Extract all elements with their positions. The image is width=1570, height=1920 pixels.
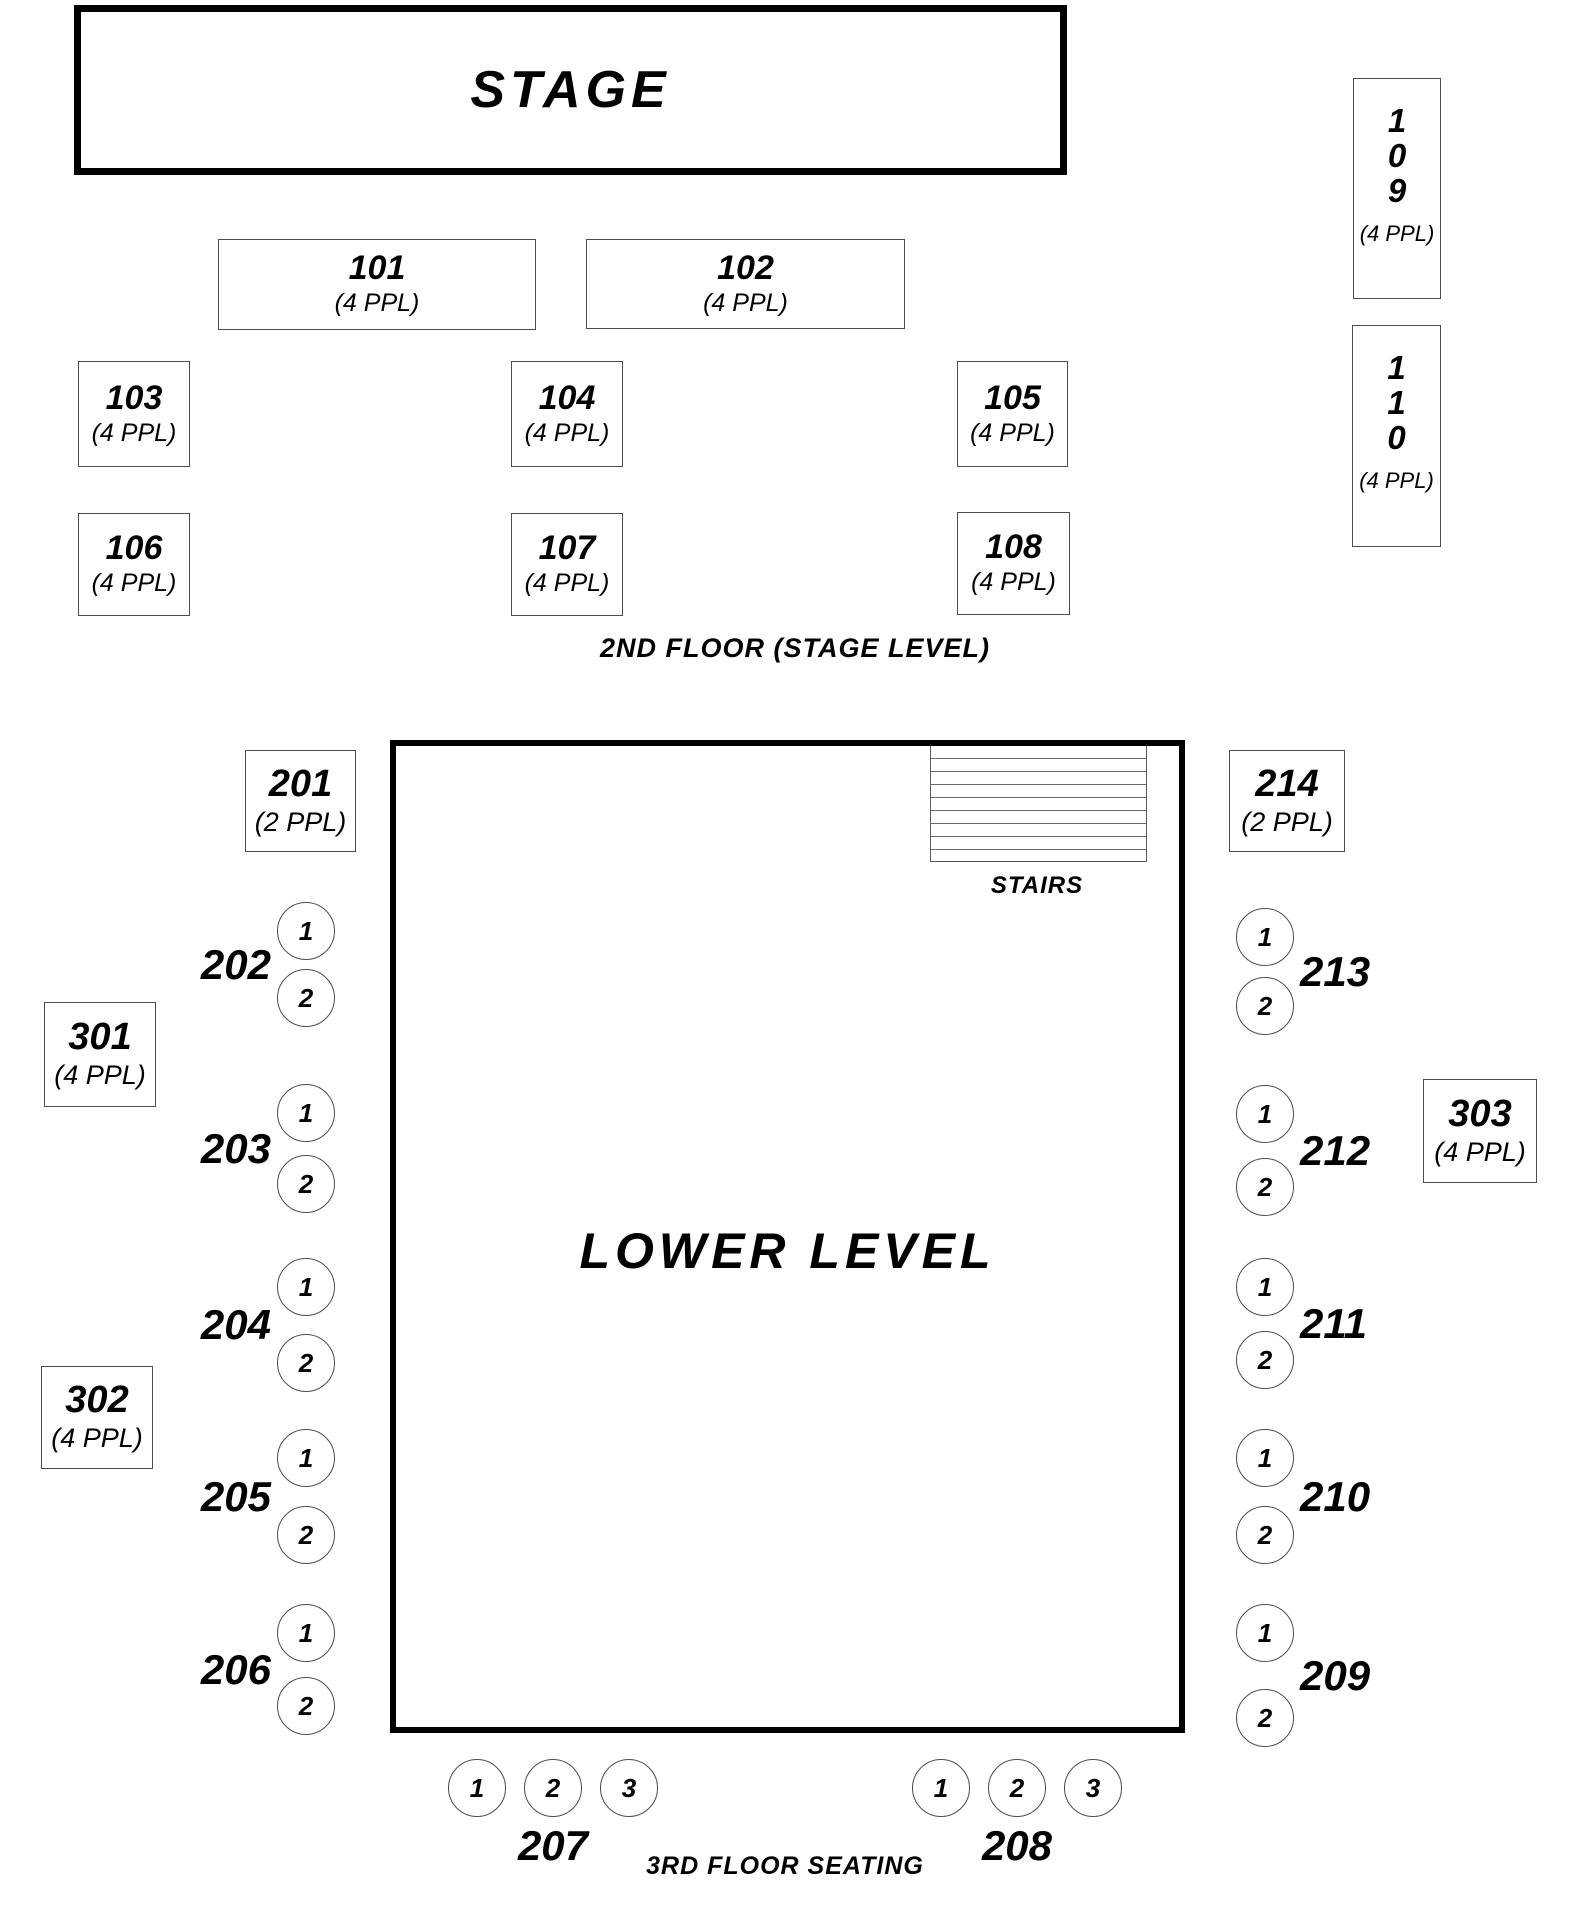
table-label: 211 (1300, 1300, 1388, 1348)
table-205-group: 205 1 2 (183, 1429, 335, 1564)
table-number: 214 (1255, 765, 1318, 805)
table-label: 213 (1300, 948, 1388, 996)
table-301[interactable]: 301 (4 PPL) (44, 1002, 156, 1107)
floor2-caption: 2ND FLOOR (STAGE LEVEL) (395, 633, 1195, 664)
table-210-group: 1 2 210 (1236, 1429, 1388, 1564)
table-label: 206 (183, 1646, 271, 1694)
table-number: 302 (65, 1381, 128, 1421)
seat-circle[interactable]: 1 (1236, 1604, 1294, 1662)
stairs (930, 746, 1147, 862)
table-capacity: (4 PPL) (51, 1424, 143, 1454)
table-105[interactable]: 105 (4 PPL) (957, 361, 1068, 467)
table-capacity: (4 PPL) (335, 290, 420, 318)
table-label: 204 (183, 1301, 271, 1349)
seat-circle[interactable]: 1 (277, 902, 335, 960)
table-number: 301 (68, 1018, 131, 1058)
table-214[interactable]: 214 (2 PPL) (1229, 750, 1345, 852)
seat-circle[interactable]: 1 (448, 1759, 506, 1817)
table-213-group: 1 2 213 (1236, 908, 1388, 1035)
seat-circle[interactable]: 1 (1236, 1429, 1294, 1487)
table-number: 108 (985, 530, 1042, 566)
table-206-group: 206 1 2 (183, 1604, 335, 1735)
table-number-digit: 1 (1388, 105, 1406, 137)
table-capacity: (4 PPL) (92, 570, 177, 598)
seat-circle[interactable]: 2 (988, 1759, 1046, 1817)
seat-circle[interactable]: 2 (277, 1155, 335, 1213)
seat-circle[interactable]: 1 (277, 1258, 335, 1316)
table-capacity: (4 PPL) (970, 420, 1055, 448)
table-103[interactable]: 103 (4 PPL) (78, 361, 190, 467)
seat-circle[interactable]: 2 (1236, 1158, 1294, 1216)
table-104[interactable]: 104 (4 PPL) (511, 361, 623, 467)
table-number-digit: 0 (1387, 422, 1405, 454)
table-capacity: (4 PPL) (92, 420, 177, 448)
table-capacity: (2 PPL) (255, 808, 347, 838)
seat-circle[interactable]: 2 (1236, 1689, 1294, 1747)
table-capacity: (4 PPL) (1359, 469, 1434, 493)
table-label: 210 (1300, 1473, 1388, 1521)
table-number: 201 (269, 765, 332, 805)
floor3-caption: 3RD FLOOR SEATING (385, 1852, 1185, 1881)
table-203-group: 203 1 2 (183, 1084, 335, 1213)
lower-level-label: LOWER LEVEL (390, 1222, 1185, 1280)
seating-chart: STAGE 101 (4 PPL) 102 (4 PPL) 103 (4 PPL… (0, 0, 1570, 1920)
stairs-label: STAIRS (937, 872, 1137, 900)
table-label: 203 (183, 1125, 271, 1173)
table-number: 106 (106, 531, 163, 567)
seat-circle[interactable]: 2 (1236, 1506, 1294, 1564)
table-303[interactable]: 303 (4 PPL) (1423, 1079, 1537, 1183)
seat-circle[interactable]: 2 (1236, 1331, 1294, 1389)
table-label: 212 (1300, 1127, 1388, 1175)
seat-circle[interactable]: 1 (1236, 1085, 1294, 1143)
seat-circle[interactable]: 1 (277, 1604, 335, 1662)
table-106[interactable]: 106 (4 PPL) (78, 513, 190, 616)
seat-circle[interactable]: 2 (277, 1506, 335, 1564)
table-label: 209 (1300, 1652, 1388, 1700)
seat-circle[interactable]: 1 (1236, 908, 1294, 966)
seat-circle[interactable]: 2 (277, 969, 335, 1027)
table-number-digit: 0 (1388, 140, 1406, 172)
table-capacity: (4 PPL) (1360, 222, 1435, 246)
stage-box: STAGE (74, 5, 1067, 175)
seat-circle[interactable]: 2 (1236, 977, 1294, 1035)
table-capacity: (2 PPL) (1241, 808, 1333, 838)
table-number: 103 (106, 381, 163, 417)
table-209-group: 1 2 209 (1236, 1604, 1388, 1747)
seat-circle[interactable]: 1 (277, 1429, 335, 1487)
table-211-group: 1 2 211 (1236, 1258, 1388, 1389)
table-107[interactable]: 107 (4 PPL) (511, 513, 623, 616)
table-number: 303 (1448, 1095, 1511, 1135)
table-capacity: (4 PPL) (1434, 1138, 1526, 1168)
table-number: 105 (984, 381, 1041, 417)
table-number-digit: 9 (1388, 175, 1406, 207)
table-102[interactable]: 102 (4 PPL) (586, 239, 905, 329)
table-number: 102 (717, 251, 774, 287)
table-202-group: 202 1 2 (183, 902, 335, 1027)
seat-circle[interactable]: 1 (912, 1759, 970, 1817)
table-110[interactable]: 1 1 0 (4 PPL) (1352, 325, 1441, 547)
table-capacity: (4 PPL) (971, 569, 1056, 597)
table-302[interactable]: 302 (4 PPL) (41, 1366, 153, 1469)
table-101[interactable]: 101 (4 PPL) (218, 239, 536, 330)
table-212-group: 1 2 212 (1236, 1085, 1388, 1216)
table-108[interactable]: 108 (4 PPL) (957, 512, 1070, 615)
table-201[interactable]: 201 (2 PPL) (245, 750, 356, 852)
seat-circle[interactable]: 2 (524, 1759, 582, 1817)
table-number-digit: 1 (1387, 352, 1405, 384)
table-label: 205 (183, 1473, 271, 1521)
seat-circle[interactable]: 2 (277, 1677, 335, 1735)
table-number: 101 (349, 251, 406, 287)
seat-circle[interactable]: 2 (277, 1334, 335, 1392)
table-number: 107 (539, 531, 596, 567)
table-capacity: (4 PPL) (703, 290, 788, 318)
table-204-group: 204 1 2 (183, 1258, 335, 1392)
table-capacity: (4 PPL) (54, 1061, 146, 1091)
table-capacity: (4 PPL) (525, 570, 610, 598)
seat-circle[interactable]: 3 (1064, 1759, 1122, 1817)
seat-circle[interactable]: 3 (600, 1759, 658, 1817)
seat-circle[interactable]: 1 (1236, 1258, 1294, 1316)
stage-label: STAGE (470, 60, 670, 120)
table-number: 104 (539, 381, 596, 417)
table-number-digit: 1 (1387, 387, 1405, 419)
table-capacity: (4 PPL) (525, 420, 610, 448)
table-109[interactable]: 1 0 9 (4 PPL) (1353, 78, 1441, 299)
table-label: 202 (183, 941, 271, 989)
seat-circle[interactable]: 1 (277, 1084, 335, 1142)
